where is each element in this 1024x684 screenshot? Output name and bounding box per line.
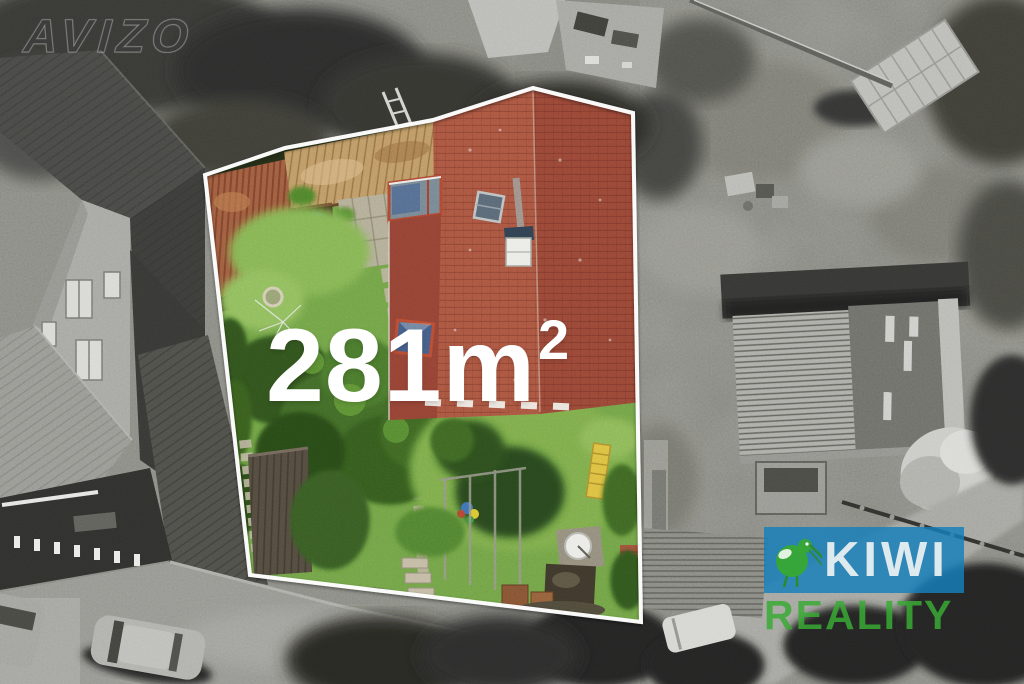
watermark-avizo: AVIZO bbox=[22, 8, 196, 63]
area-label: 281m2 bbox=[266, 314, 570, 418]
area-value: 281 bbox=[266, 308, 443, 424]
brand-subtitle: REALITY bbox=[764, 595, 964, 636]
kiwi-bird-icon bbox=[768, 531, 822, 589]
brand-logo: KIWI REALITY bbox=[764, 527, 964, 636]
area-exponent: 2 bbox=[538, 308, 570, 371]
area-unit: m bbox=[443, 308, 536, 424]
brand-name: KIWI bbox=[824, 536, 949, 585]
brand-box: KIWI bbox=[764, 527, 964, 593]
aerial-photo: AVIZO 281m2 KIWI REALITY bbox=[0, 0, 1024, 684]
